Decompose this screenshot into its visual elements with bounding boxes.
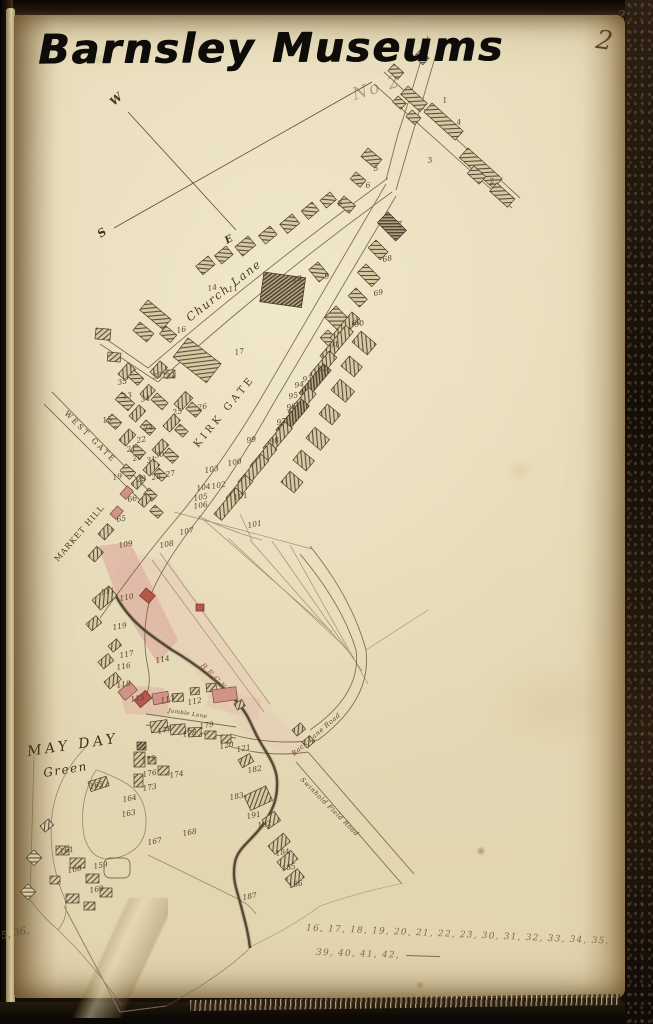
plot-number: 14 (207, 282, 218, 293)
compass-letter: E (222, 233, 235, 247)
building-footprint (150, 505, 164, 518)
plot-number: 96 (286, 401, 297, 412)
plot-number: 186 (288, 879, 304, 890)
building-footprint (319, 404, 340, 425)
plot-number: 1 (442, 95, 448, 105)
building-footprint (84, 902, 95, 910)
building-footprint (244, 786, 273, 811)
street-label: Green (42, 759, 88, 780)
compass-we-line (128, 112, 236, 230)
plot-number: 182 (247, 764, 263, 775)
road-back-lane2 (300, 554, 357, 730)
building-footprint (107, 352, 121, 362)
plot-number: 121 (236, 743, 252, 754)
plot-number: 26 (196, 401, 208, 412)
building-footprint (361, 148, 382, 168)
compass-letter: S (95, 225, 109, 240)
plot-number: 174 (169, 769, 185, 780)
plot-number: 7 (397, 219, 403, 229)
building-footprint (158, 766, 169, 775)
building-footprint (50, 876, 60, 884)
plot-number: 103 (204, 464, 220, 475)
plot-number: 108 (159, 539, 175, 550)
building-footprint (173, 338, 221, 383)
plot-number: 11 (228, 283, 239, 294)
road-ne-link (366, 610, 428, 650)
building-footprint (120, 464, 136, 479)
plot-number: 114 (155, 654, 171, 665)
plot-number: 22 (135, 434, 147, 445)
building-footprint (293, 450, 314, 471)
plot-number: 117 (119, 649, 135, 660)
plot-number: 99 (246, 434, 257, 445)
plot-number: 183 (229, 791, 245, 802)
compass-letter: W (107, 89, 126, 108)
plot-number: 90 (354, 318, 365, 329)
plot-number: 167 (147, 836, 163, 847)
building-footprint (215, 246, 234, 264)
building-footprint (175, 424, 189, 437)
building-footprint (281, 471, 303, 493)
building-footprint (348, 288, 367, 307)
plot-number: 94 (294, 379, 305, 390)
plot-number: 66 (127, 493, 138, 504)
building-footprint (196, 256, 215, 275)
building-footprint (306, 427, 330, 450)
compass-letters-layer: WSE (95, 89, 236, 247)
building-footprint (358, 264, 381, 287)
plot-number: 69 (373, 287, 384, 298)
plot-number: 33 (152, 370, 163, 381)
museum-watermark: Barnsley Museums (38, 22, 504, 73)
plot-number: 98 (269, 435, 280, 446)
building-footprint (66, 894, 79, 903)
plot-number: 92 (317, 363, 328, 374)
plot-number: 15 (102, 414, 113, 425)
plot-number: 113 (160, 694, 176, 705)
page-number: 2 (594, 25, 615, 57)
building-footprint (95, 328, 111, 340)
road-kirkgate-east (196, 196, 396, 522)
plot-number: 91 (329, 339, 340, 350)
street-label: Swinhold Field Road (299, 776, 361, 838)
road-west-gate2 (44, 404, 140, 500)
plot-number: 68 (382, 253, 393, 264)
plot-number: 187 (242, 891, 258, 902)
compass-cross (114, 82, 372, 230)
building-footprint (205, 731, 216, 739)
hand-drawn-town-plan: Church LaneKIRK GATEWEST GATEMARKET HILL… (0, 0, 653, 1024)
footnote-dash (406, 955, 440, 957)
plot-number: 19 (112, 471, 123, 482)
building-footprint (259, 226, 278, 244)
plot-number: 191 (246, 810, 262, 821)
corner-page-mark: 2 (618, 8, 626, 22)
plot-number: 9 (324, 271, 330, 281)
building-footprint (140, 300, 171, 329)
building-footprint (331, 379, 355, 402)
plot-number: 6 (365, 180, 371, 190)
plot-number: 177 (157, 725, 173, 736)
plot-number: 35 (117, 376, 128, 387)
plot-number: 112 (187, 696, 203, 707)
plot-number: 116 (116, 661, 132, 672)
plot-number: 160 (67, 864, 83, 875)
plot-number: 101 (247, 519, 263, 530)
building-footprint (86, 874, 99, 883)
building-footprint (350, 172, 366, 187)
road-back-lane (310, 546, 367, 740)
building-footprint (190, 687, 200, 695)
plot-number: 164 (122, 793, 138, 804)
road-junction-link (386, 134, 398, 180)
street-label: Church Lane (183, 257, 264, 325)
plot-number: 17 (234, 346, 245, 357)
compass-ns-line (114, 82, 372, 228)
building-footprint (163, 448, 179, 463)
street-label: MAY DAY (25, 731, 119, 760)
building-footprint (235, 236, 256, 256)
plot-number: 159 (93, 860, 109, 871)
plot-number: 173 (142, 782, 158, 793)
plot-number: 65 (116, 513, 127, 524)
plot-number: 107 (179, 526, 195, 537)
building-footprint (137, 742, 146, 750)
plot-number: 100 (227, 457, 243, 468)
road-junction-link2 (396, 142, 410, 190)
road-swinhold-field2 (308, 752, 414, 874)
plot-number: 192 (257, 819, 273, 830)
plot-number: 165 (89, 780, 105, 791)
building-footprint (20, 884, 36, 900)
plot-number: 27 (164, 468, 176, 479)
building-footprint (26, 850, 42, 866)
plot-number: 13 (122, 390, 133, 401)
plot-number: 34 (140, 393, 151, 404)
building-footprint (98, 654, 114, 669)
plot-number: 25 (171, 406, 183, 417)
plot-number: 179 (199, 720, 215, 731)
plot-number: 30 (154, 449, 165, 460)
plot-number: 101 (233, 491, 249, 502)
plot-number: 102 (211, 480, 227, 491)
building-footprint (196, 604, 204, 611)
plot-number: 163 (121, 808, 137, 819)
building-footprint (151, 393, 168, 410)
building-footprint (280, 214, 300, 233)
plot-number: 5 (373, 163, 379, 173)
plot-number: 168 (182, 827, 198, 838)
plot-number: 32 (165, 370, 176, 381)
plot-number: 176 (142, 768, 158, 779)
building-footprint (98, 524, 114, 540)
building-footprint (129, 405, 146, 422)
plot-number: 120 (219, 740, 235, 751)
plot-number: 161 (59, 845, 75, 856)
building-footprint (320, 192, 336, 208)
building-footprint (86, 616, 102, 631)
plot-number: 29 (135, 473, 147, 484)
building-footprint (393, 96, 407, 109)
plot-number: 28 (150, 471, 162, 482)
building-footprint (301, 202, 319, 219)
green-boundaries (30, 745, 400, 1006)
plot-number: 20 (131, 452, 143, 463)
building-footprint (352, 331, 376, 355)
plot-number: 10 (292, 273, 303, 284)
building-footprint (133, 322, 154, 342)
building-footprint (490, 183, 515, 207)
plot-number: 119 (112, 621, 128, 632)
building-footprint (341, 356, 362, 377)
plot-number: 3 (427, 155, 433, 165)
plot-number: 16 (176, 324, 187, 335)
scanned-book-page: Barnsley Museums 2 2 No 2 5, 36, (0, 0, 653, 1024)
plot-number: 178 (182, 728, 198, 739)
plot-number: 21 (125, 443, 137, 454)
plot-number: 95 (288, 390, 299, 401)
plot-number: 97 (276, 416, 287, 427)
plot-number: 24 (142, 422, 154, 433)
